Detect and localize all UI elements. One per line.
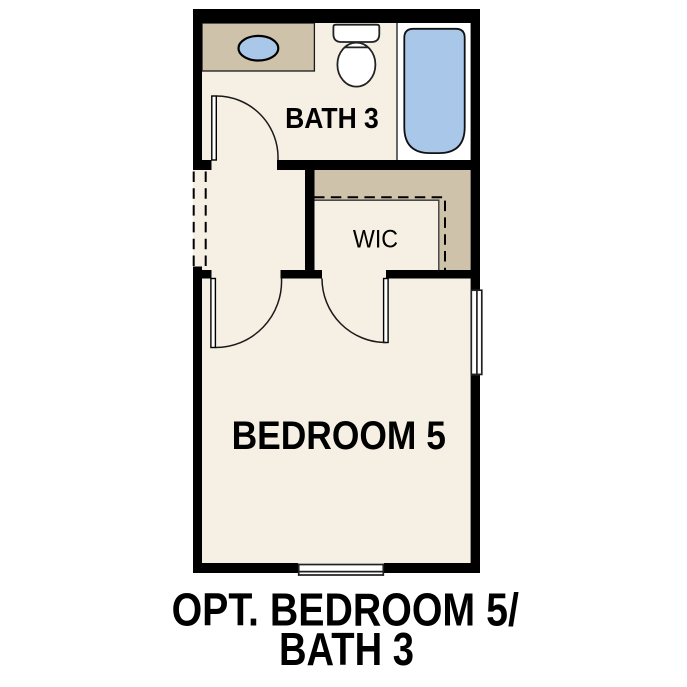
- svg-text:BATH 3: BATH 3: [279, 623, 414, 675]
- svg-text:BATH 3: BATH 3: [285, 103, 379, 135]
- svg-text:BEDROOM 5: BEDROOM 5: [232, 414, 446, 458]
- svg-text:WIC: WIC: [353, 225, 398, 253]
